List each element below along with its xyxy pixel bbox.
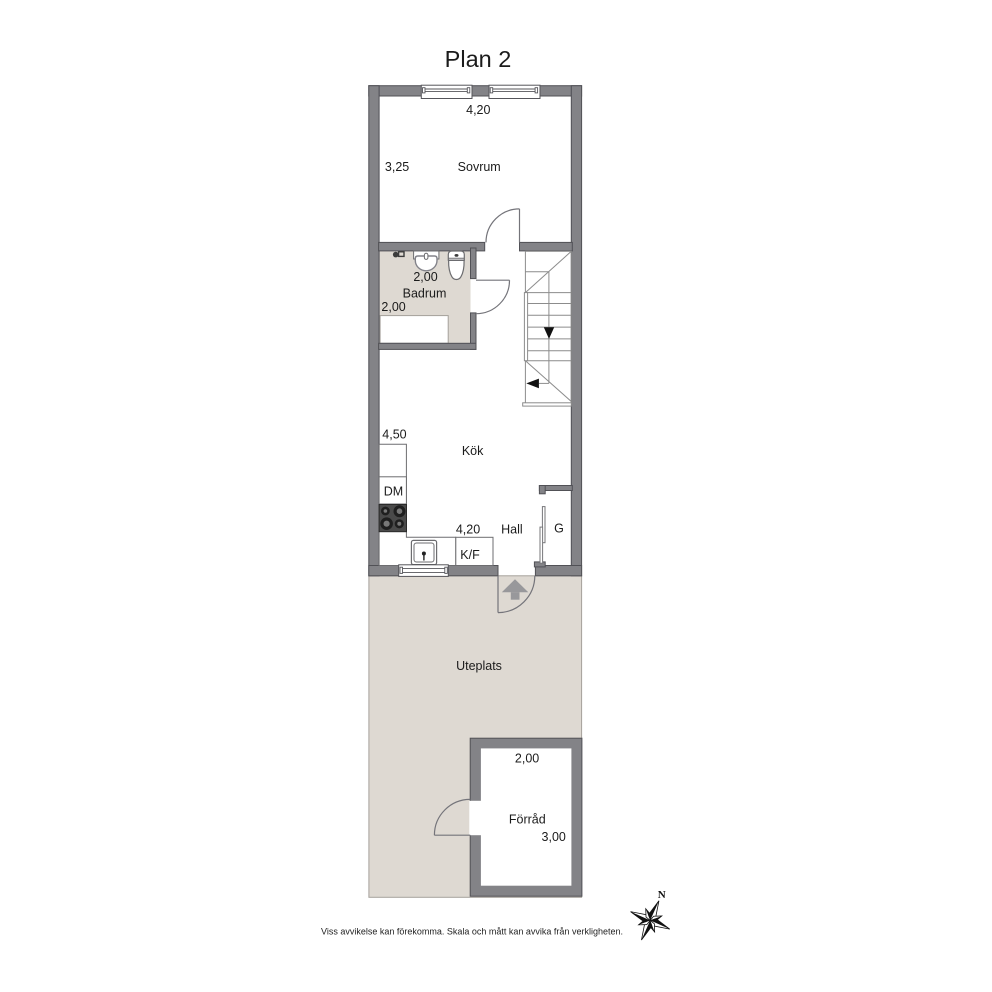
svg-text:Hall: Hall [501, 523, 523, 537]
svg-text:G: G [554, 521, 564, 535]
svg-text:4,50: 4,50 [382, 427, 406, 441]
svg-text:Kök: Kök [462, 444, 484, 458]
svg-text:2,00: 2,00 [381, 300, 405, 314]
svg-text:Plan 2: Plan 2 [445, 46, 512, 72]
svg-text:Badrum: Badrum [403, 286, 447, 300]
svg-text:DM: DM [384, 484, 403, 498]
svg-text:Viss avvikelse kan förekomma.: Viss avvikelse kan förekomma. Skala och … [321, 926, 623, 936]
svg-text:4,20: 4,20 [456, 523, 480, 537]
svg-text:2,00: 2,00 [515, 751, 539, 765]
svg-text:Sovrum: Sovrum [458, 160, 501, 174]
svg-text:3,25: 3,25 [385, 160, 409, 174]
svg-text:Förråd: Förråd [509, 812, 546, 826]
svg-text:K/F: K/F [460, 548, 480, 562]
svg-text:4,20: 4,20 [466, 103, 490, 117]
svg-text:3,00: 3,00 [542, 830, 566, 844]
svg-text:Uteplats: Uteplats [456, 659, 502, 673]
svg-text:2,00: 2,00 [413, 270, 437, 284]
svg-text:N: N [658, 889, 666, 901]
